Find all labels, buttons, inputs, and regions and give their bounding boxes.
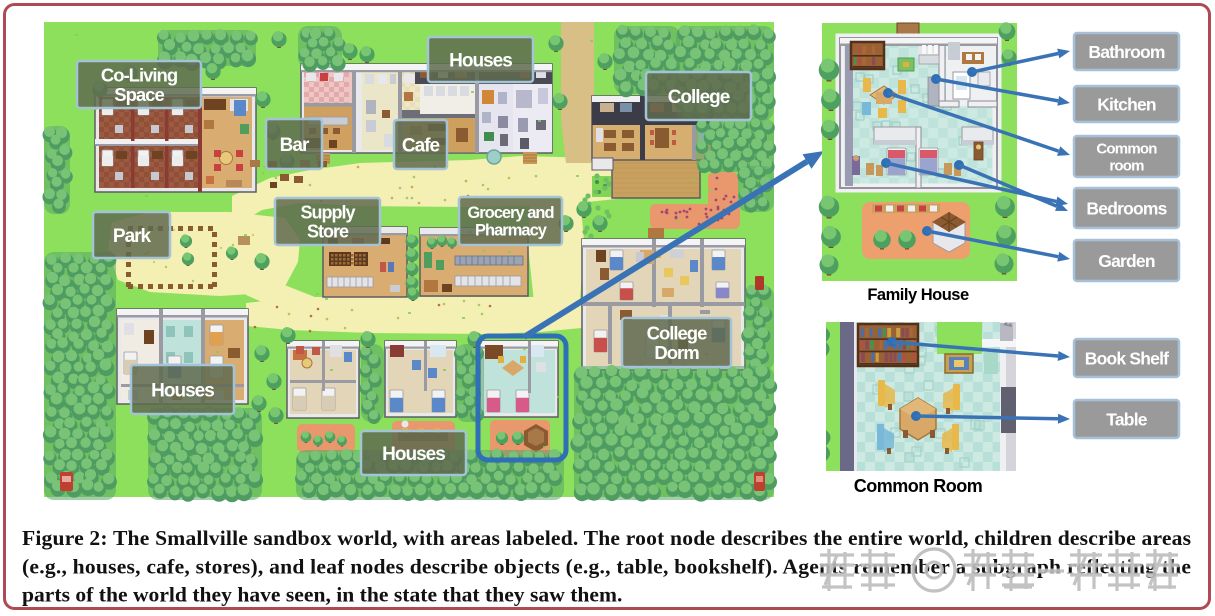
svg-text:Bar: Bar	[280, 135, 310, 156]
svg-text:Co-Living: Co-Living	[101, 64, 178, 85]
svg-text:Houses: Houses	[151, 380, 214, 401]
svg-text:Table: Table	[1106, 409, 1147, 429]
svg-text:Common Room: Common Room	[854, 476, 983, 496]
svg-text:Supply: Supply	[300, 203, 355, 223]
svg-text:Space: Space	[114, 84, 164, 105]
svg-text:Kitchen: Kitchen	[1097, 94, 1156, 114]
svg-text:Figure 2: The Smallville sandb: Figure 2: The Smallville sandbox world, …	[22, 526, 1191, 550]
svg-text:Cafe: Cafe	[402, 135, 440, 156]
svg-text:Dorm: Dorm	[654, 342, 699, 363]
svg-text:Garden: Garden	[1098, 251, 1155, 271]
svg-text:Houses: Houses	[449, 50, 512, 71]
svg-text:room: room	[1109, 157, 1144, 174]
svg-text:Bedrooms: Bedrooms	[1086, 198, 1167, 218]
svg-text:Park: Park	[113, 226, 152, 247]
svg-text:parts of the world they have s: parts of the world they have seen, in th…	[22, 583, 622, 607]
svg-text:Family House: Family House	[867, 286, 969, 304]
svg-text:Pharmacy: Pharmacy	[475, 222, 548, 240]
svg-text:College: College	[647, 322, 708, 343]
svg-text:Bathroom: Bathroom	[1088, 42, 1164, 62]
svg-text:Book Shelf: Book Shelf	[1085, 348, 1169, 368]
svg-text:Store: Store	[307, 222, 349, 242]
svg-text:Common: Common	[1096, 140, 1157, 157]
svg-text:College: College	[668, 87, 730, 108]
svg-text:Grocery and: Grocery and	[467, 204, 553, 222]
svg-text:Houses: Houses	[382, 444, 445, 465]
